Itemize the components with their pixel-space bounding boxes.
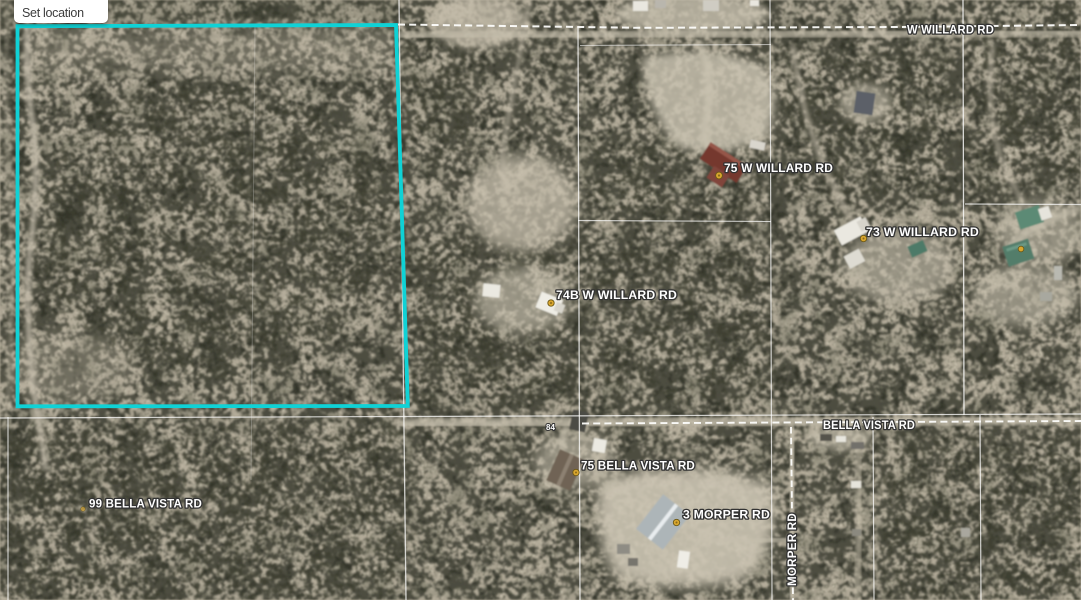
svg-text:3 MORPER RD: 3 MORPER RD xyxy=(683,510,770,522)
svg-text:MORPER RD: MORPER RD xyxy=(787,513,799,586)
svg-text:W WILLARD RD: W WILLARD RD xyxy=(907,25,994,37)
svg-text:75 W WILLARD RD: 75 W WILLARD RD xyxy=(724,163,833,175)
svg-text:99 BELLA VISTA RD: 99 BELLA VISTA RD xyxy=(89,499,202,511)
svg-text:74B W WILLARD RD: 74B W WILLARD RD xyxy=(556,290,677,302)
svg-text:73 W WILLARD RD: 73 W WILLARD RD xyxy=(866,227,979,239)
svg-text:75 BELLA VISTA RD: 75 BELLA VISTA RD xyxy=(581,461,695,473)
svg-text:BELLA VISTA RD: BELLA VISTA RD xyxy=(823,420,915,432)
svg-text:84: 84 xyxy=(546,423,555,432)
